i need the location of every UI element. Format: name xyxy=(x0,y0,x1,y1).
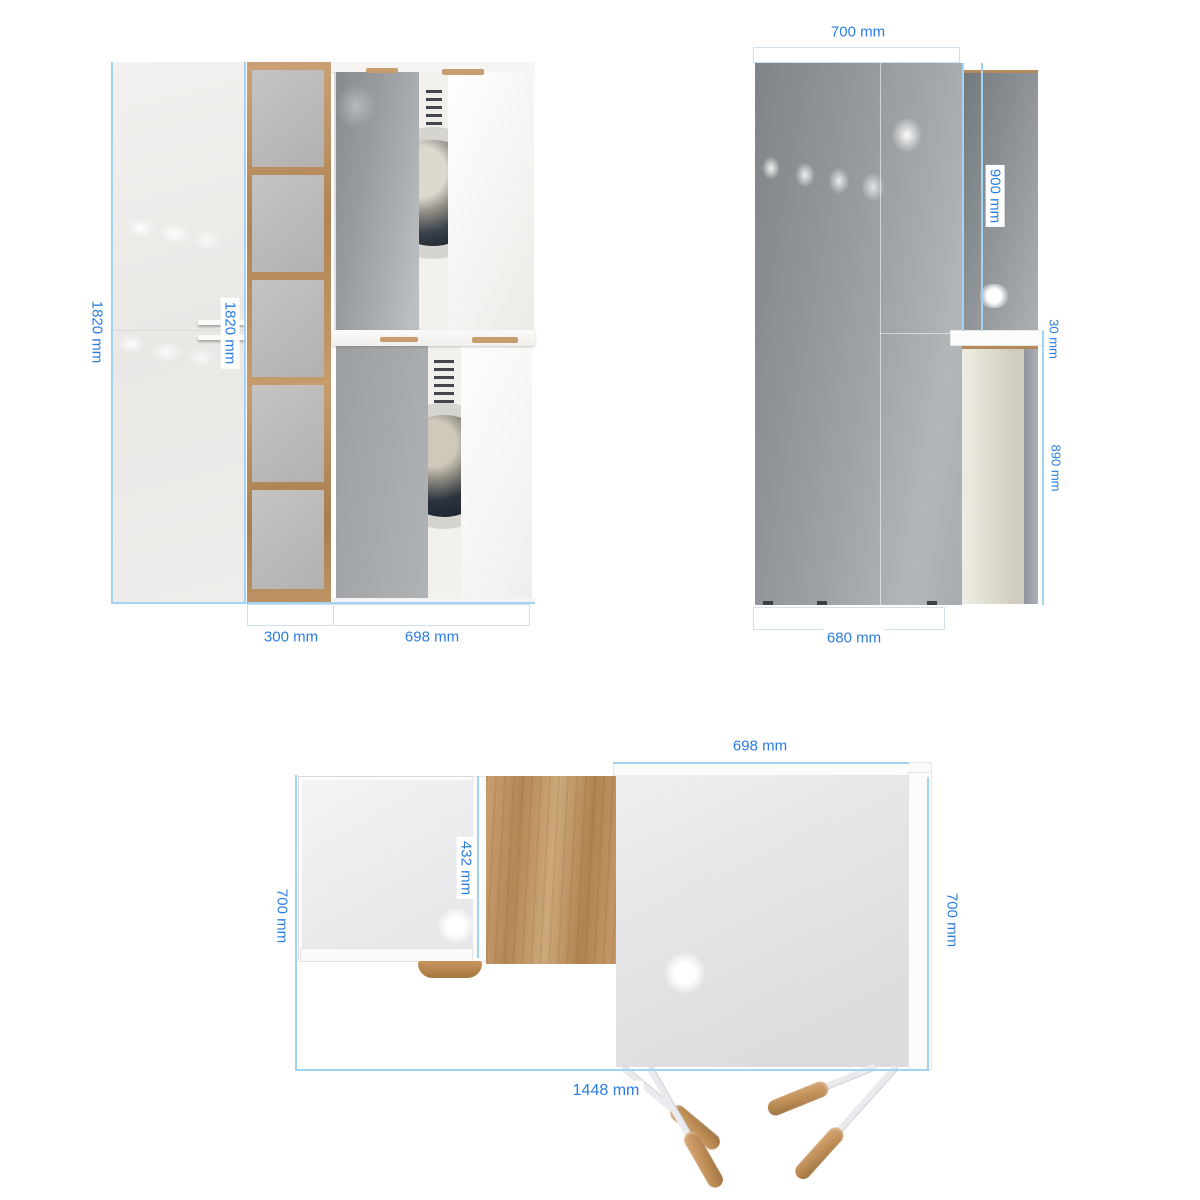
front-width-cell-cabinet xyxy=(333,605,529,625)
lower-washer-drum xyxy=(428,403,461,529)
plan-dim-line-top xyxy=(613,762,909,764)
upper-gray-door-handle[interactable] xyxy=(366,68,398,73)
side-dim-line-lower xyxy=(1042,331,1044,605)
dim-label-side-lower-height: 890 mm xyxy=(1047,441,1064,496)
shelf-cell-4 xyxy=(252,385,324,482)
leg-3-foot xyxy=(765,1079,830,1118)
side-main-panel[interactable] xyxy=(755,63,962,605)
front-width-bracket xyxy=(247,604,530,626)
side-panel-foot-2 xyxy=(817,601,827,605)
upper-white-door-handle[interactable] xyxy=(442,69,484,75)
side-dim-line-inner xyxy=(962,63,964,331)
side-panel-seam-vertical xyxy=(880,63,881,605)
front-dim-line-inner xyxy=(244,62,246,604)
plan-right-panel-top-edge xyxy=(613,762,932,776)
dim-label-plan-right-depth: 700 mm xyxy=(942,889,961,951)
plan-left-panel-handle[interactable] xyxy=(418,961,482,978)
plan-left-panel-front-edge xyxy=(300,948,490,962)
front-dim-line-left xyxy=(111,62,113,604)
side-bottom-bracket xyxy=(753,607,945,630)
side-top-bracket xyxy=(753,47,960,63)
dim-label-front-total-height: 1820 mm xyxy=(87,297,106,368)
leg-4-foot xyxy=(792,1124,847,1182)
dim-label-plan-left-depth: 700 mm xyxy=(272,885,291,947)
upper-washer-drum xyxy=(419,127,448,259)
cabinet-leg-2 xyxy=(643,1063,727,1192)
side-dim-line-outer xyxy=(981,63,983,331)
dim-label-plan-cabinet-depth: 698 mm xyxy=(729,736,791,755)
dim-label-plan-total-width: 1448 mm xyxy=(569,1081,644,1101)
lower-washing-machine xyxy=(428,346,461,598)
front-upper-gray-door[interactable] xyxy=(334,72,420,330)
side-lower-panel-edge xyxy=(1024,349,1038,604)
shelf-cell-3 xyxy=(252,280,324,377)
plan-dim-line-right xyxy=(927,777,929,1070)
plan-wood-bench[interactable] xyxy=(486,776,616,964)
lower-white-door-handle[interactable] xyxy=(472,337,518,343)
dim-label-side-bottom-depth: 680 mm xyxy=(823,628,885,647)
furniture-drawing-canvas: 1820 mm 1820 mm 300 mm 698 mm xyxy=(0,0,1200,1200)
shelf-cell-1 xyxy=(252,70,324,167)
front-lower-gray-door[interactable] xyxy=(336,346,428,598)
plan-right-panel[interactable] xyxy=(616,775,908,1067)
dim-label-front-cabinet-width: 698 mm xyxy=(401,627,463,646)
dim-label-front-shelf-width: 300 mm xyxy=(260,627,322,646)
front-upper-white-door[interactable] xyxy=(446,72,534,330)
dim-label-side-upper-height: 900 mm xyxy=(985,165,1004,227)
side-lower-right-panel[interactable] xyxy=(962,346,1038,604)
plan-left-panel-glow xyxy=(438,908,474,944)
plan-dim-line-inner xyxy=(477,776,479,958)
side-panel-foot-3 xyxy=(927,601,937,605)
front-width-cell-shelf xyxy=(248,605,333,625)
upper-washing-machine xyxy=(419,72,448,330)
side-panel-foot-1 xyxy=(763,601,773,605)
shelf-cell-2 xyxy=(252,175,324,272)
lower-gray-door-handle[interactable] xyxy=(380,337,418,342)
plan-dim-line-left xyxy=(295,775,297,1071)
dim-label-front-door-height: 1820 mm xyxy=(220,298,239,369)
shelf-cell-5 xyxy=(252,490,324,589)
front-dim-line-bottom xyxy=(111,602,535,604)
plan-right-panel-glow xyxy=(665,952,705,994)
plan-dim-line-bottom xyxy=(295,1069,929,1071)
dim-label-side-worktop-thickness: 30 mm xyxy=(1045,315,1062,363)
side-worktop-strip xyxy=(950,330,1045,346)
front-lower-white-door[interactable] xyxy=(459,346,532,598)
dim-label-plan-inner-depth: 432 mm xyxy=(456,837,475,899)
dim-label-side-top-depth: 700 mm xyxy=(827,22,889,41)
